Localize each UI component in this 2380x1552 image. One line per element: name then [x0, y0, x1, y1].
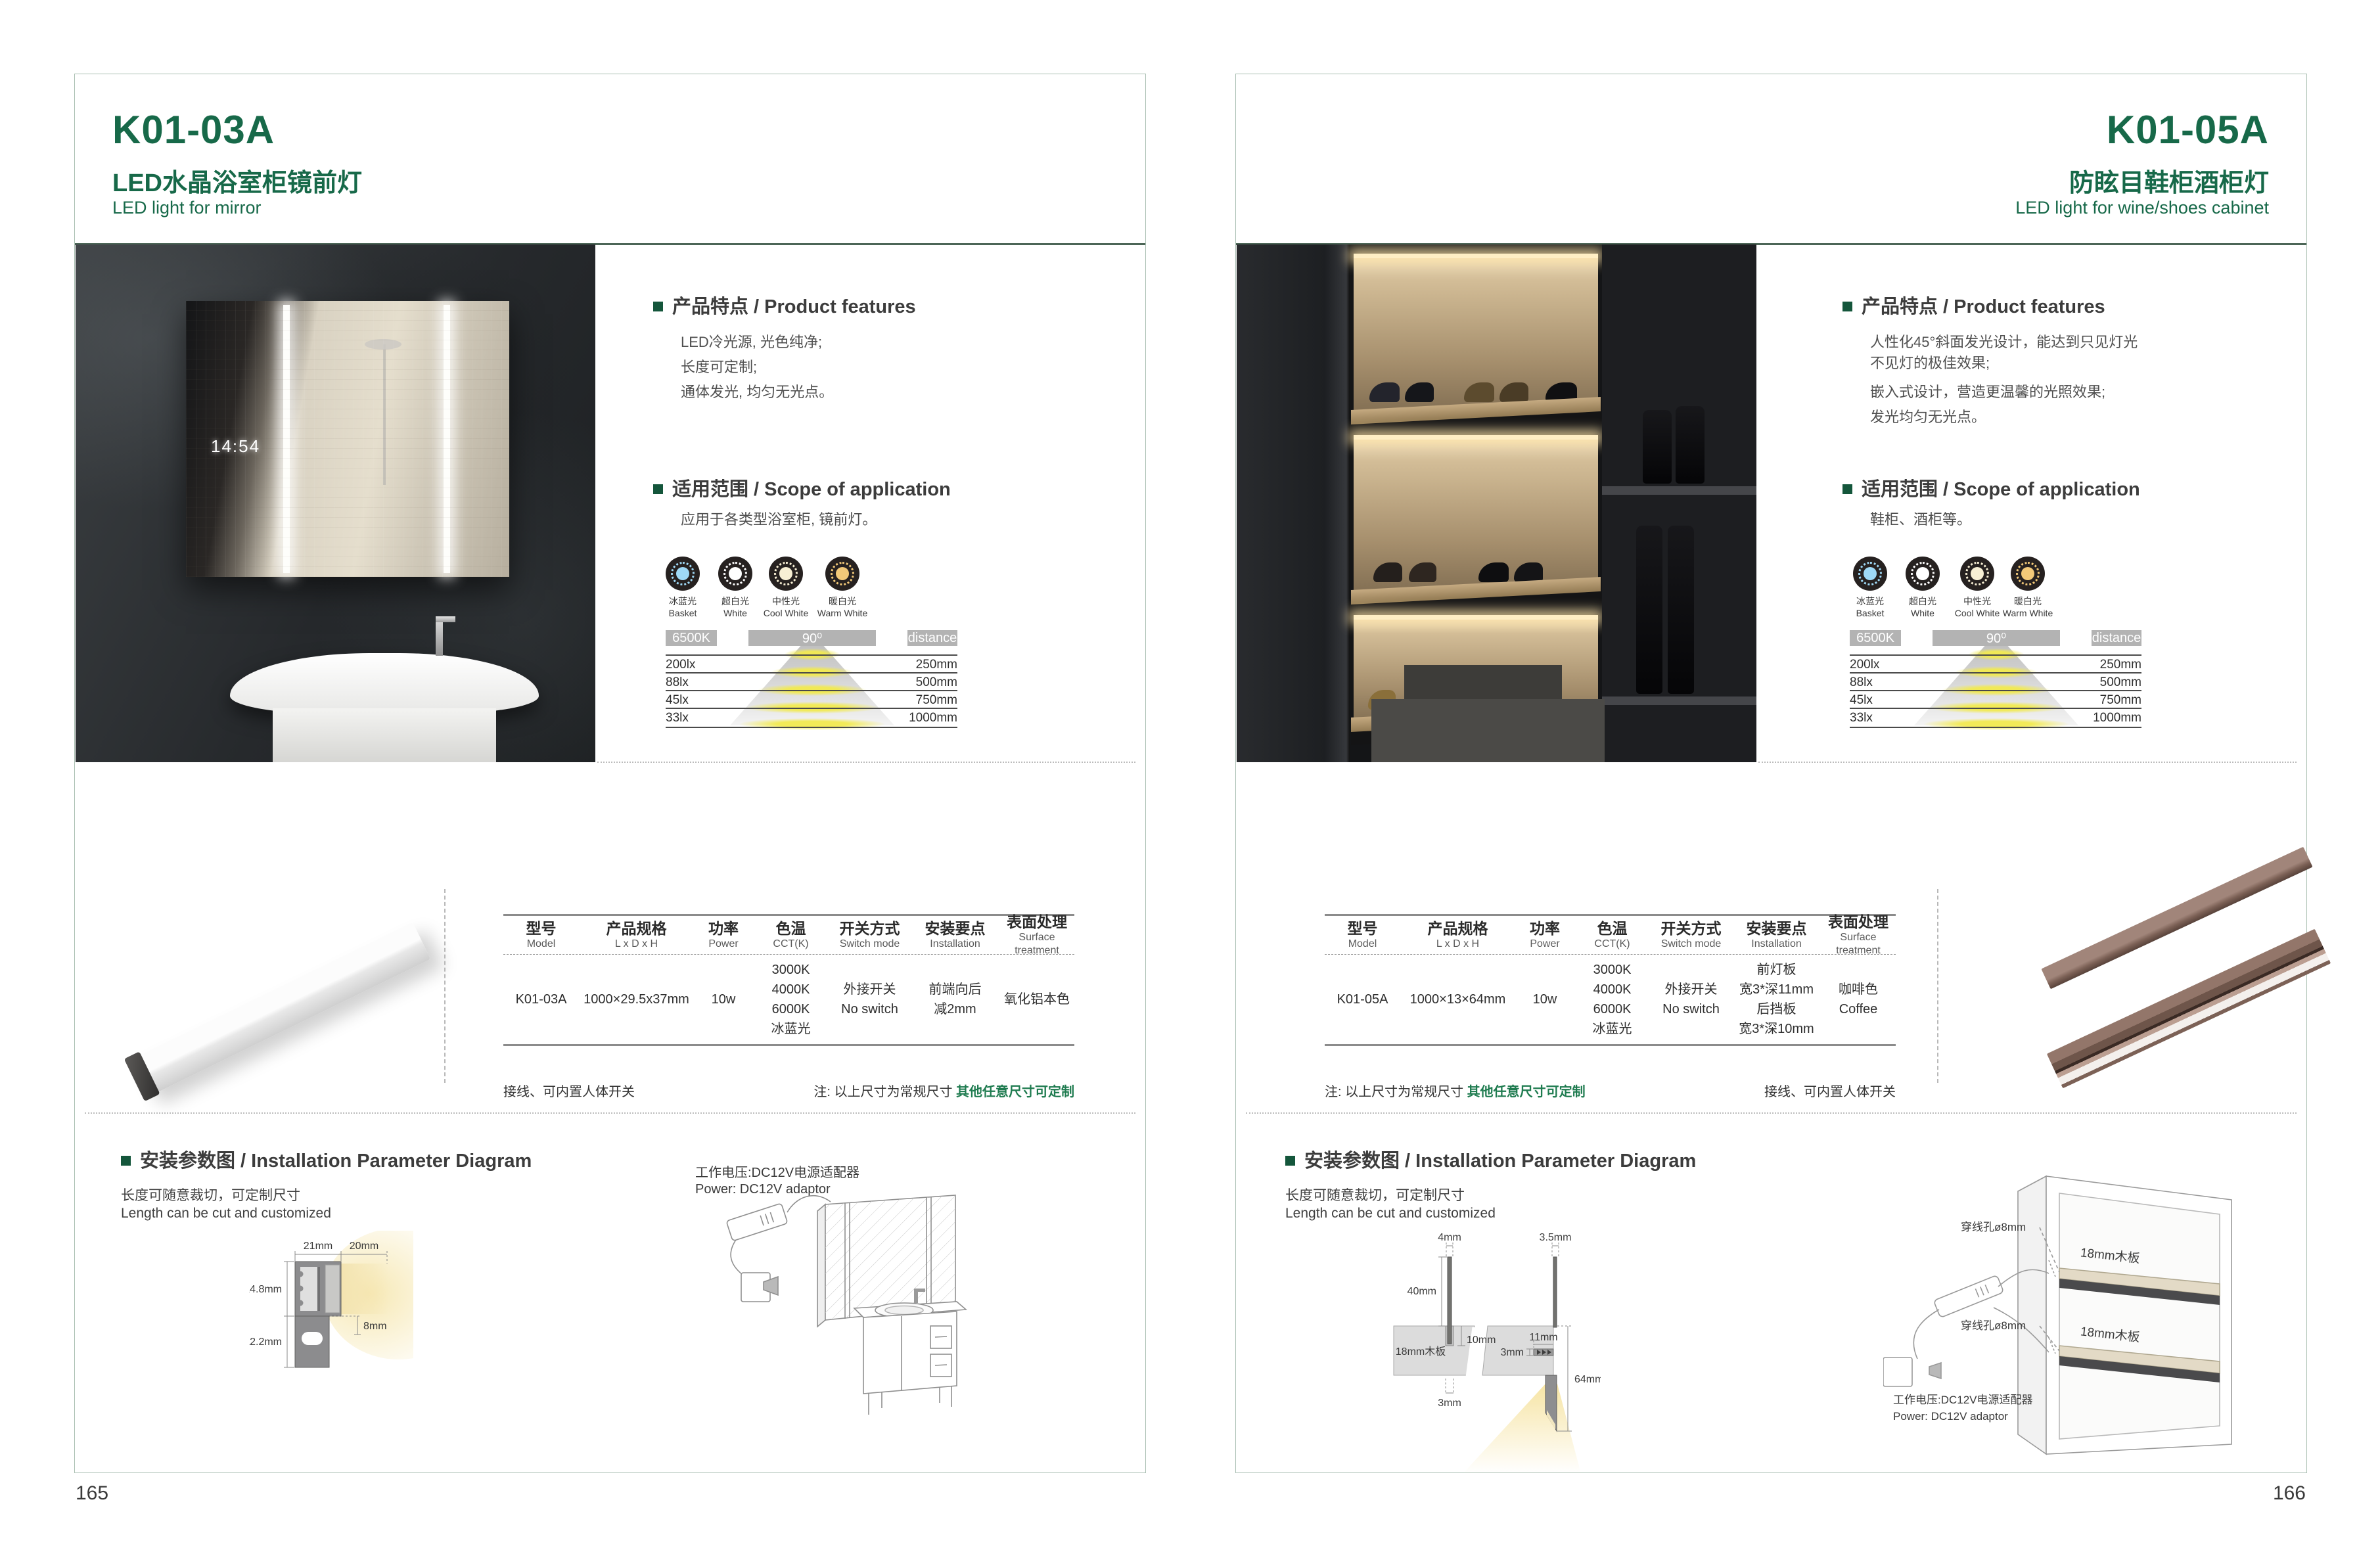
shoe-box	[1404, 665, 1562, 702]
aluminum-profile-image	[129, 923, 431, 1097]
power-adaptor	[1934, 1275, 2004, 1318]
page-title-en: LED light for wine/shoes cabinet	[2015, 198, 2269, 218]
back-baffle	[1448, 1257, 1452, 1344]
divider-dotted	[1758, 762, 2297, 763]
divider-dotted	[85, 1112, 1135, 1114]
hole-label: 穿线孔ø8mm	[1961, 1218, 2026, 1234]
divider-dotted	[1246, 1112, 2297, 1114]
lit-shelf-compartment	[1354, 254, 1598, 419]
dim-8mm: 8mm	[363, 1321, 387, 1332]
page-title-code: K01-03A	[112, 107, 275, 152]
mirror-image: 14:54	[186, 301, 509, 577]
beam-angle-label: 90⁰	[1933, 630, 2060, 646]
beam-row: 45lx750mm	[666, 690, 957, 709]
lit-shelf-compartment	[1354, 435, 1598, 599]
dim-3mm: 3mm	[1438, 1398, 1461, 1409]
cable	[731, 1235, 745, 1277]
sun-icon	[666, 557, 700, 591]
divider-dashed	[1937, 889, 1938, 1083]
vanity-body	[863, 1312, 957, 1394]
dim-11mm: 11mm	[1529, 1332, 1557, 1343]
light-option-white: 超白光 White	[1894, 557, 1951, 618]
dim-148mm: 14.8mm	[249, 1284, 282, 1295]
beam-row: 88lx500mm	[666, 672, 957, 691]
spec-table: 型号Model 产品规格L x D x H 功率Power 色温CCT(K) 开…	[1325, 914, 1896, 1046]
led-strip-right	[444, 305, 450, 573]
shoe-box	[1371, 699, 1605, 762]
feature-line: 发光均匀无光点。	[1870, 405, 1986, 426]
light-option-cool-white: 中性光 Cool White	[758, 557, 814, 618]
hole-label: 穿线孔ø8mm	[1961, 1316, 2026, 1333]
green-square-icon	[653, 302, 663, 311]
divider-dashed	[444, 889, 446, 1083]
cable	[1913, 1310, 1939, 1359]
beam-row: 33lx1000mm	[1850, 708, 2141, 728]
cut-note-cn: 长度可随意裁切，可定制尺寸	[121, 1185, 300, 1204]
light-option-cool-white: 中性光 Cool White	[1949, 557, 2005, 618]
kelvin-label: 6500K	[666, 630, 717, 646]
feature-line: 人性化45°斜面发光设计，能达到只见灯光	[1870, 331, 2138, 352]
scope-header: 适用范围 / Scope of application	[1842, 474, 2140, 501]
spec-table-header: 型号Model 产品规格L x D x H 功率Power 色温CCT(K) 开…	[503, 916, 1074, 955]
catalog-spread: K01-03A LED水晶浴室柜镜前灯 LED light for mirror…	[0, 0, 2380, 1552]
basin-cabinet	[273, 708, 496, 762]
feature-line: LED冷光源, 光色纯净;	[681, 331, 822, 352]
light-glow	[1463, 1384, 1581, 1474]
features-header: 产品特点 / Product features	[1842, 291, 2105, 319]
green-square-icon	[1842, 302, 1852, 311]
page-title-cn: LED水晶浴室柜镜前灯	[112, 162, 362, 198]
feature-line: 通体发光, 均匀无光点。	[681, 380, 833, 401]
size-note: 注: 以上尺寸为常规尺寸 其他任意尺寸可定制	[1325, 1081, 1586, 1100]
cut-note-en: Length can be cut and customized	[1285, 1206, 1496, 1221]
sun-icon	[1853, 557, 1887, 591]
feature-line: 长度可定制;	[681, 355, 757, 377]
mirror-side	[817, 1204, 825, 1327]
beam-row: 33lx1000mm	[666, 708, 957, 728]
shower-head	[365, 339, 401, 350]
distance-label: distance	[2092, 630, 2141, 646]
dim-64mm: 64mm	[1574, 1374, 1601, 1385]
mirror-clock: 14:54	[211, 436, 260, 457]
power-note-cn: 工作电压:DC12V电源适配器	[695, 1162, 859, 1181]
sun-icon	[825, 557, 859, 591]
dim-122mm: 12.2mm	[249, 1336, 282, 1348]
cut-note-cn: 长度可随意裁切，可定制尺寸	[1285, 1185, 1465, 1204]
dim-40mm: 40mm	[1407, 1286, 1436, 1297]
scope-line: 鞋柜、酒柜等。	[1870, 508, 1971, 529]
page-title-en: LED light for mirror	[112, 198, 262, 218]
page-left: K01-03A LED水晶浴室柜镜前灯 LED light for mirror…	[74, 74, 1146, 1473]
dim-35mm: 3.5mm	[1540, 1232, 1572, 1243]
sun-icon	[718, 557, 752, 591]
panel-label: 18mm木板	[1396, 1346, 1446, 1358]
product-photo-profile	[152, 886, 375, 1083]
cross-section-diagram: 21mm 20mm 14.8mm 12.2mm 8mm	[249, 1231, 413, 1398]
spec-table-header: 型号Model 产品规格L x D x H 功率Power 色温CCT(K) 开…	[1325, 916, 1896, 955]
sun-icon	[2011, 557, 2045, 591]
faucet	[436, 616, 443, 656]
wiring-note: 接线、可内置人体开关	[503, 1081, 635, 1100]
light-option-ice-blue: 冰蓝光 Basket	[654, 557, 711, 618]
light-option-warm-white: 暖白光 Warm White	[2000, 557, 2056, 618]
hero-photo-shoe-cabinet	[1237, 244, 1756, 762]
led-strip-left	[283, 305, 290, 573]
spec-table: 型号Model 产品规格L x D x H 功率Power 色温CCT(K) 开…	[503, 914, 1074, 1046]
dim-20mm: 20mm	[350, 1241, 378, 1252]
page-number-right: 166	[2273, 1482, 2306, 1505]
beam-angle-label: 90⁰	[748, 630, 876, 646]
distance-label: distance	[907, 630, 957, 646]
hero-photo-mirror: 14:54	[76, 244, 595, 762]
sun-icon	[769, 557, 803, 591]
green-square-icon	[1285, 1156, 1295, 1166]
dim-10mm: 10mm	[1467, 1335, 1496, 1346]
cabinet-drawing	[1883, 1162, 2235, 1500]
cross-section-diagram: 4mm 3.5mm 40mm 18mm木板 10mm 3mm 11mm 3mm …	[1384, 1221, 1601, 1474]
page-number-left: 165	[76, 1482, 108, 1505]
install-scene-cabinet: 穿线孔ø8mm 穿线孔ø8mm 18mm木板 18mm木板 工作电压:DC12V…	[1883, 1162, 2235, 1500]
page-right: K01-05A 防眩目鞋柜酒柜灯 LED light for wine/shoe…	[1235, 74, 2307, 1473]
install-scene-mirror	[725, 1191, 1041, 1474]
product-photo-profile	[2071, 873, 2297, 1083]
sun-icon	[1906, 557, 1940, 591]
divider-dotted	[597, 762, 1135, 763]
power-note-cn: 工作电压:DC12V电源适配器	[1893, 1390, 2033, 1407]
light-exit	[341, 1264, 388, 1314]
size-note: 注: 以上尺寸为常规尺寸 其他任意尺寸可定制	[813, 1081, 1074, 1100]
wall-socket	[1883, 1358, 1912, 1386]
dim-4mm: 4mm	[1438, 1232, 1461, 1243]
mounting-slot	[302, 1332, 323, 1345]
shower-rail	[383, 344, 386, 485]
spec-table-row: K01-03A 1000×29.5x37mm 10w 3000K4000K 60…	[503, 955, 1074, 1046]
light-option-white: 超白光 White	[707, 557, 764, 618]
scope-header: 适用范围 / Scope of application	[653, 474, 951, 501]
boot-column	[1602, 244, 1756, 762]
cut-note-en: Length can be cut and customized	[121, 1206, 331, 1221]
install-header: 安装参数图 / Installation Parameter Diagram	[121, 1145, 532, 1173]
dim-21mm: 21mm	[304, 1241, 332, 1252]
plug	[1929, 1363, 1941, 1379]
green-square-icon	[121, 1156, 131, 1166]
install-header: 安装参数图 / Installation Parameter Diagram	[1285, 1145, 1696, 1173]
page-title-cn: 防眩目鞋柜酒柜灯	[2069, 162, 2269, 198]
scope-line: 应用于各类型浴室柜, 镜前灯。	[681, 508, 877, 529]
kelvin-label: 6500K	[1850, 630, 1901, 646]
power-adaptor	[726, 1203, 788, 1241]
beam-row: 88lx500mm	[1850, 672, 2141, 691]
wash-basin	[230, 653, 539, 714]
green-square-icon	[653, 484, 663, 494]
power-note-en: Power: DC12V adaptor	[1893, 1410, 2008, 1423]
cabinet-door	[1237, 244, 1350, 762]
beam-distance-chart: 6500K 90⁰ distance 200lx250mm 88lx500mm …	[666, 630, 957, 730]
page-title-code: K01-05A	[2107, 107, 2269, 152]
front-lamp-plate	[1553, 1257, 1557, 1327]
beam-row: 200lx250mm	[666, 654, 957, 673]
beam-row: 200lx250mm	[1850, 654, 2141, 673]
diffuser	[325, 1265, 340, 1313]
features-header: 产品特点 / Product features	[653, 291, 916, 319]
beam-distance-chart: 6500K 90⁰ distance 200lx250mm 88lx500mm …	[1850, 630, 2141, 730]
spec-table-row: K01-05A 1000×13×64mm 10w 3000K4000K 6000…	[1325, 955, 1896, 1046]
dim-3mm: 3mm	[1500, 1347, 1524, 1358]
feature-line: 不见灯的极佳效果;	[1870, 352, 1990, 373]
light-option-warm-white: 暖白光 Warm White	[814, 557, 871, 618]
wiring-note: 接线、可内置人体开关	[1764, 1081, 1896, 1100]
beam-row: 45lx750mm	[1850, 690, 2141, 709]
green-square-icon	[1842, 484, 1852, 494]
light-option-ice-blue: 冰蓝光 Basket	[1842, 557, 1898, 618]
cabinet-opening	[2059, 1193, 2220, 1439]
feature-line: 嵌入式设计，营造更温馨的光照效果;	[1870, 380, 2105, 401]
sun-icon	[1960, 557, 1994, 591]
